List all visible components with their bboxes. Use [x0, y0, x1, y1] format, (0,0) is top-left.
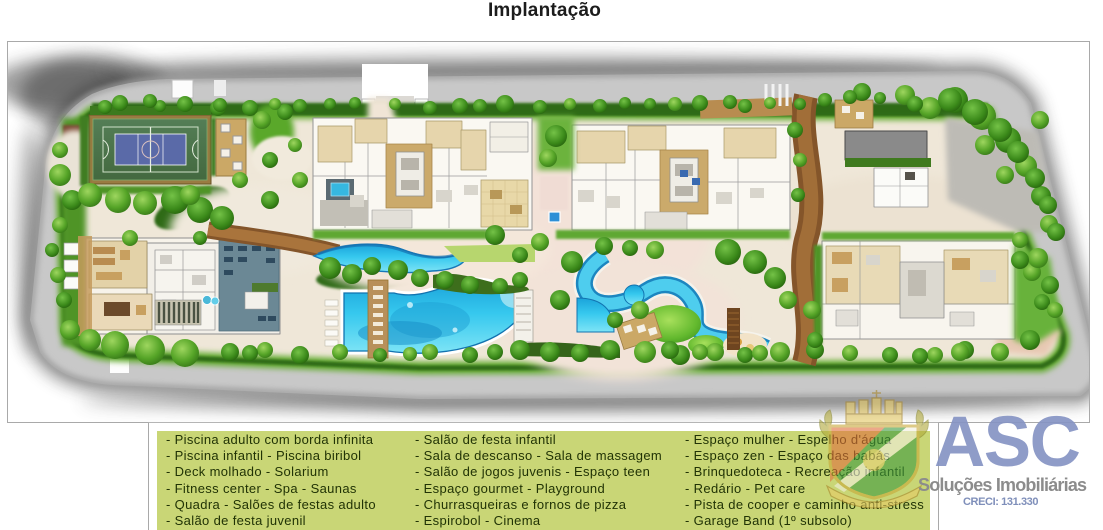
svg-text:CRECI: 131.330: CRECI: 131.330: [963, 496, 1038, 508]
svg-text:Soluções Imobiliárias: Soluções Imobiliárias: [918, 475, 1087, 495]
